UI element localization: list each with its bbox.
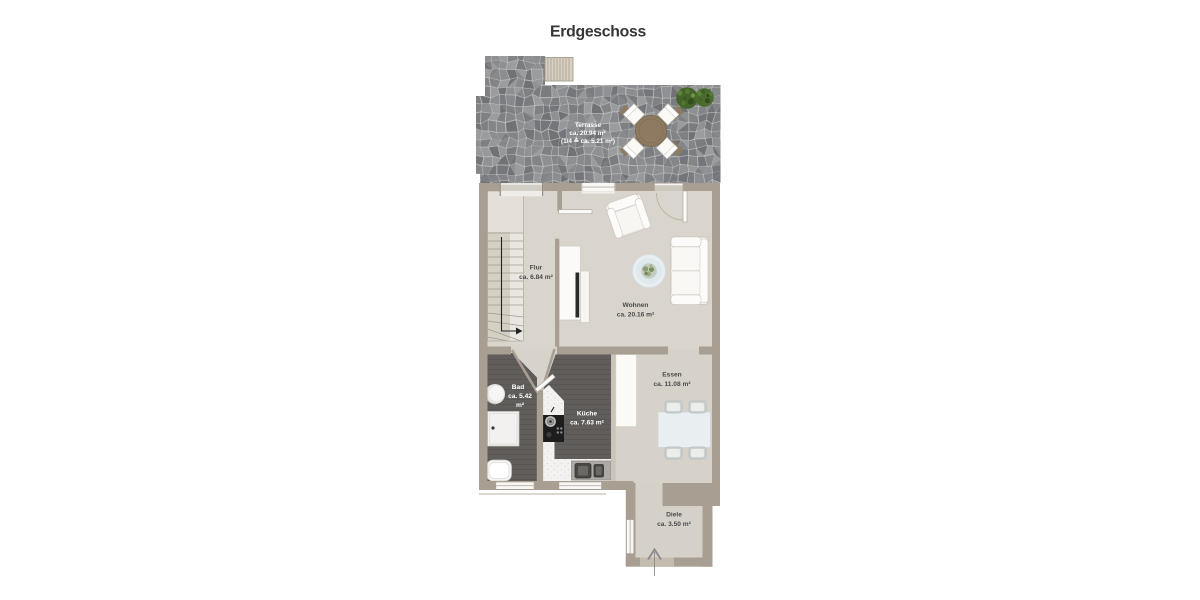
svg-text:Bad: Bad [512,384,524,391]
svg-text:Terrasse: Terrasse [575,122,602,129]
svg-text:ca. 6.84 m²: ca. 6.84 m² [519,274,554,281]
svg-text:ca. 7.63 m²: ca. 7.63 m² [570,420,605,427]
svg-text:Wohnen: Wohnen [623,302,649,309]
svg-text:ca. 20.94 m²: ca. 20.94 m² [569,130,605,137]
svg-text:ca. 20.16 m²: ca. 20.16 m² [617,312,655,319]
svg-text:Flur: Flur [530,265,543,272]
svg-text:Essen: Essen [662,372,681,379]
svg-text:(1/4 ≙ ca. 5.21 m²): (1/4 ≙ ca. 5.21 m²) [561,137,615,145]
svg-text:ca. 11.08 m²: ca. 11.08 m² [653,381,691,388]
svg-text:ca. 3.50 m²: ca. 3.50 m² [657,521,692,528]
svg-text:Diele: Diele [666,512,682,519]
svg-text:Küche: Küche [577,411,597,418]
svg-text:ca. 5.42: ca. 5.42 [508,393,532,400]
svg-text:m²: m² [516,402,525,409]
svg-text:Erdgeschoss: Erdgeschoss [550,24,646,41]
